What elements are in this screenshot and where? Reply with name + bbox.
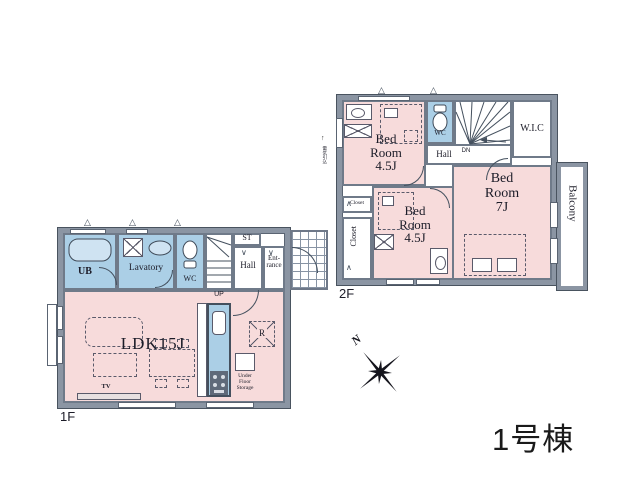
tv-label: TV [91,384,121,391]
hanger-mark-2f-2: ∧ [346,264,352,272]
window-1f-left-2 [57,336,63,364]
hanger-mark-1f-1: ∨ [241,249,247,257]
closet-tall-label: Closet [350,226,358,246]
window-1f-top-1 [70,229,106,234]
service-arrow-icon: ↑ [321,134,325,142]
window-2f-bottom-1 [386,279,414,285]
window-1f-bottom-1 [118,402,176,408]
floor-2f-label: 2F [339,287,354,301]
dresser-box [346,104,372,120]
entrance-label: Ent- rance [262,255,286,270]
desk-b2 [430,248,448,274]
window-1f-top-2 [126,229,148,234]
floorplan-2f: Bed Room 4.5J Bed Room 4.5J Bed Room 7J … [337,95,557,285]
ldk-label: LDK15J [88,335,218,353]
hanger-mark-2f-1: ∧ [346,200,352,208]
wc-2f-label: WC [426,130,454,137]
hall-1f-label: Hall [233,261,263,270]
window-2f-left [336,118,343,148]
washing-machine-icon [123,238,143,257]
page-title: 1号棟 [492,424,574,457]
dn-label: DN [456,148,476,154]
window-balcony-2 [550,238,558,264]
vent-triangle-1f-2: △ [129,219,136,228]
tv-stand [77,393,141,400]
fridge-label: R [249,329,275,338]
floor-1f-label: 1F [60,410,75,424]
balcony: Balcony [557,163,587,290]
floor-plan-canvas: Bed Room 4.5J Bed Room 4.5J Bed Room 7J … [0,0,640,480]
dining-chair-4 [177,379,189,388]
bed-c-pillow-1 [472,258,492,272]
dining-chair-3 [155,379,167,388]
window-1f-left-1 [57,306,63,330]
bedroom-b-label: Bed Room 4.5J [384,204,446,245]
coffee-table [93,353,137,377]
bathtub-icon [68,238,112,262]
floorplan-1f: R Under Floor Storage TV UB Lavatory WC … [58,228,290,408]
vent-triangle-1f-3: △ [174,219,181,228]
up-label: UP [205,291,233,298]
under-floor-storage-label: Under Floor Storage [221,374,269,391]
under-floor-storage-box [235,353,255,371]
dresser-basin [351,108,365,118]
st-label: ST [233,234,261,242]
ub-label: UB [67,267,103,278]
toilet-icon-1f [180,239,200,273]
vent-triangle-1f-1: △ [84,219,91,228]
window-2f-top [358,96,410,101]
stairs-1f-icon [207,235,231,288]
kitchen-sink [212,311,226,335]
service-note-label: 電気引込 [322,146,327,164]
window-2f-bottom-2 [416,279,440,285]
hanger-mark-1f-2: ∨ [268,249,274,257]
sink-icon [147,240,173,256]
compass-icon: N [346,330,410,402]
window-1f-bottom-2 [206,402,254,408]
wic-label: W.I.C [512,124,552,135]
chair-b [435,256,446,270]
wc-1f-label: WC [175,275,205,283]
shutter-box-1f [47,304,57,366]
dining-table [149,349,195,377]
window-balcony-1 [550,202,558,228]
compass-n-label: N [348,331,365,349]
vent-triangle-2f-2: △ [430,87,437,96]
vent-triangle-2f-1: △ [378,87,385,96]
stairs-2f-icon [456,102,510,146]
bed-c-pillow-2 [497,258,517,272]
balcony-label: Balcony [566,185,578,222]
bed-a-pillow [384,108,398,118]
